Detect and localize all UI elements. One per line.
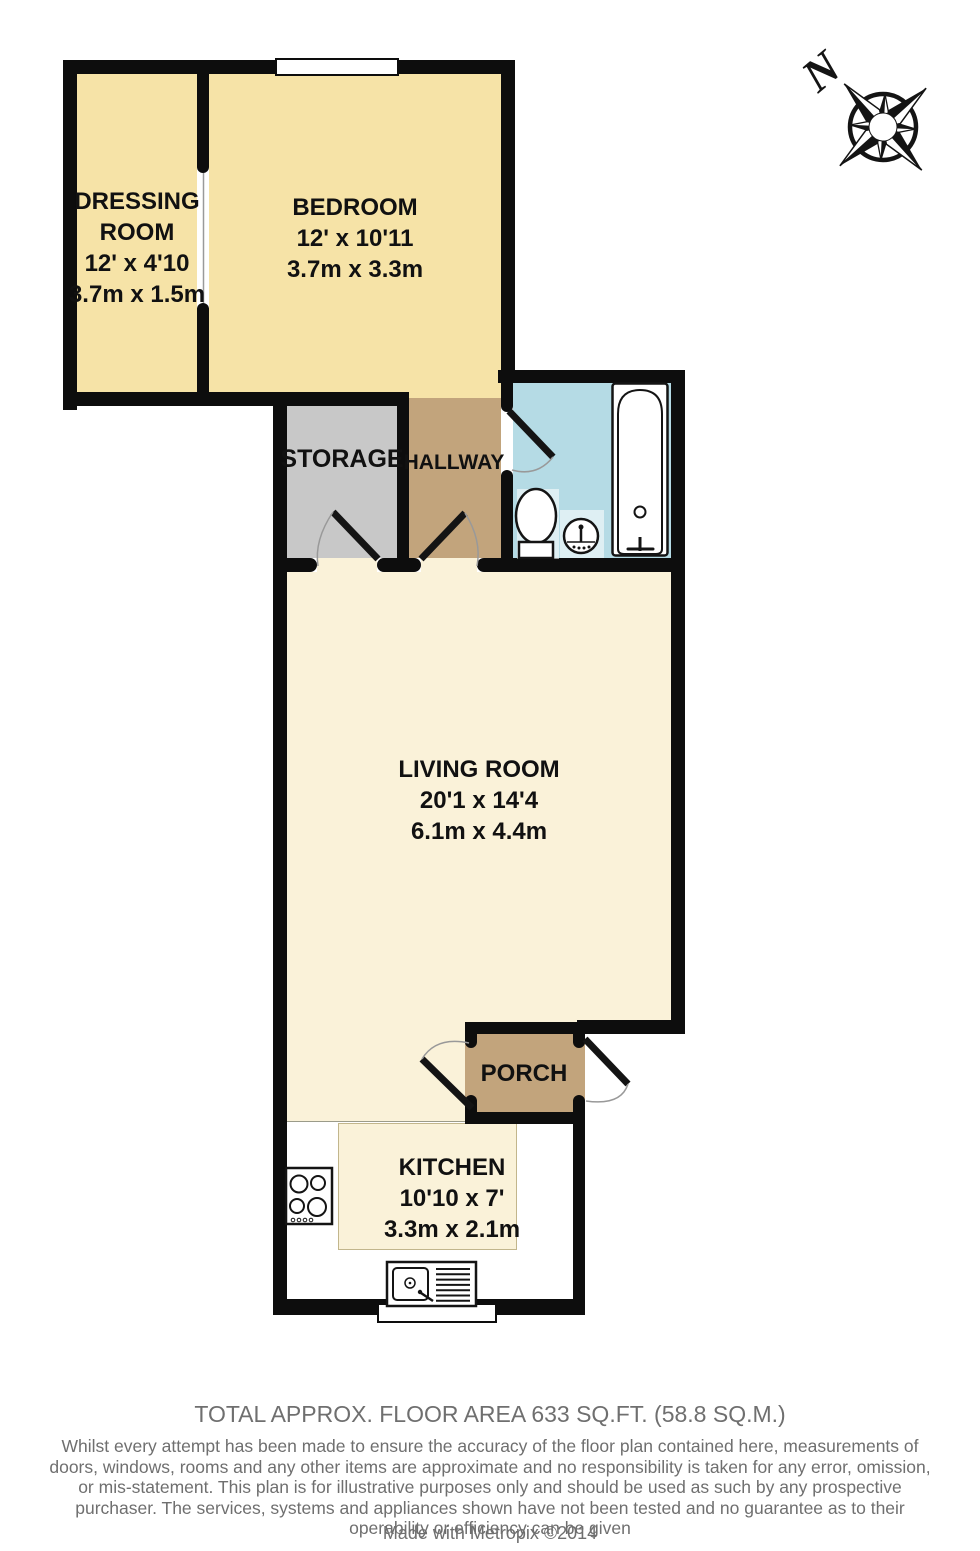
- storage-door-opening: [317, 558, 377, 572]
- kitchen-window: [377, 1303, 497, 1323]
- wall-segment: [477, 558, 685, 572]
- porch-label: PORCH: [481, 1058, 568, 1089]
- kitchen-label: KITCHEN 10'10 x 7' 3.3m x 2.1m: [384, 1152, 520, 1245]
- room-name: BEDROOM: [287, 192, 423, 223]
- living-room-floor-extension: [287, 1022, 465, 1122]
- floorplan-canvas: N DRESSING ROOM 12' x 4'10 3.7m x 1.5m B…: [0, 0, 980, 1551]
- wall-segment: [465, 1095, 477, 1112]
- wall-segment: [197, 74, 209, 173]
- room-dim-imperial: 12' x 10'11: [287, 223, 423, 254]
- room-name: HALLWAY: [404, 447, 505, 478]
- compass-rose-icon: N: [795, 35, 965, 200]
- front-door-leaf: [585, 1039, 628, 1084]
- room-dim-imperial: 12' x 4'10: [69, 248, 205, 279]
- wall-segment: [63, 392, 407, 406]
- wall-segment: [501, 383, 513, 412]
- storage-floor: [287, 406, 397, 558]
- wall-segment: [377, 558, 421, 572]
- room-name: KITCHEN: [384, 1152, 520, 1183]
- wall-segment: [573, 1112, 585, 1315]
- wall-segment: [273, 392, 287, 1315]
- room-dim-metric: 3.3m x 2.1m: [384, 1214, 520, 1245]
- wall-segment: [197, 303, 209, 406]
- compass-north-label: N: [795, 40, 852, 102]
- hallway-door-opening: [421, 558, 477, 572]
- wall-segment: [501, 60, 515, 383]
- room-name: PORCH: [481, 1058, 568, 1089]
- dressing-room-label: DRESSING ROOM 12' x 4'10 3.7m x 1.5m: [69, 186, 205, 310]
- room-name: STORAGE: [280, 444, 403, 475]
- room-dim-metric: 3.7m x 1.5m: [69, 279, 205, 310]
- wall-segment: [397, 392, 409, 572]
- hallway-floor: [409, 398, 501, 558]
- wall-segment: [501, 470, 513, 572]
- wall-segment: [573, 1034, 585, 1048]
- total-floor-area: TOTAL APPROX. FLOOR AREA 633 SQ.FT. (58.…: [0, 1401, 980, 1428]
- wall-segment: [671, 370, 685, 1034]
- wall-segment: [465, 1022, 585, 1034]
- room-name: ROOM: [69, 217, 205, 248]
- wall-segment: [573, 1095, 585, 1112]
- room-dim-imperial: 20'1 x 14'4: [398, 785, 559, 816]
- wall-segment: [498, 370, 685, 383]
- storage-label: STORAGE: [280, 444, 403, 475]
- room-dim-metric: 3.7m x 3.3m: [287, 254, 423, 285]
- wall-segment: [577, 1020, 685, 1034]
- front-door-arc: [586, 1084, 628, 1102]
- bedroom-label: BEDROOM 12' x 10'11 3.7m x 3.3m: [287, 192, 423, 285]
- room-name: DRESSING: [69, 186, 205, 217]
- bathroom-floor: [513, 383, 671, 558]
- wall-segment: [287, 558, 317, 572]
- wall-segment: [465, 1112, 585, 1124]
- room-name: LIVING ROOM: [398, 754, 559, 785]
- bedroom-window: [275, 58, 399, 76]
- living-room-label: LIVING ROOM 20'1 x 14'4 6.1m x 4.4m: [398, 754, 559, 847]
- room-dim-imperial: 10'10 x 7': [384, 1183, 520, 1214]
- metropix-credit: Made with Metropix ©2014: [0, 1523, 980, 1544]
- room-dim-metric: 6.1m x 4.4m: [398, 816, 559, 847]
- hallway-label: HALLWAY: [404, 447, 505, 478]
- wall-segment: [465, 1034, 477, 1048]
